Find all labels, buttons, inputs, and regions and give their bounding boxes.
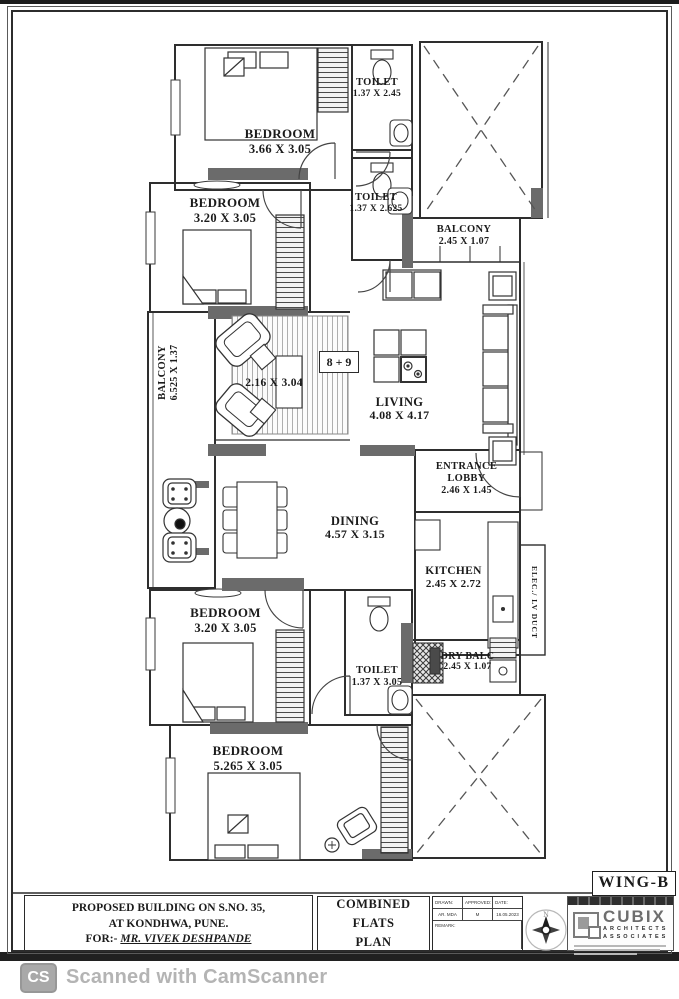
- logo-header-band: [568, 897, 673, 905]
- drawing-title-line-1: COMBINED FLATS: [318, 895, 429, 933]
- architect-sub-1: ARCHITECTS: [603, 925, 668, 933]
- room-name: BEDROOM: [150, 196, 300, 211]
- architect-firm-name: CUBIX: [603, 908, 668, 925]
- project-line-3: FOR:- MR. VIVEK DESHPANDE: [25, 932, 312, 948]
- info-header-date: DATE:: [493, 897, 522, 909]
- label-dining: DINING 4.57 X 3.15: [300, 514, 410, 541]
- drawing-title-line-2: PLAN: [318, 933, 429, 952]
- logo-address-line: [574, 953, 637, 955]
- logo-address-line: [574, 945, 666, 947]
- room-name: LOBBY: [424, 473, 509, 485]
- drawing-title-box: COMBINED FLATS PLAN: [317, 896, 430, 951]
- balcony-stools: [163, 479, 196, 562]
- room-name: TOILET: [344, 77, 410, 89]
- label-living: LIVING 4.08 X 4.17: [352, 395, 447, 422]
- project-line-2: AT KONDHWA, PUNE.: [25, 917, 312, 933]
- scanned-floor-plan-page: BEDROOM 3.66 X 3.05 TOILET 1.37 X 2.45 B…: [0, 0, 679, 999]
- for-prefix: FOR:-: [86, 933, 121, 945]
- cubix-logo-icon: [573, 912, 599, 938]
- room-dims: 2.45 X 2.72: [406, 578, 501, 590]
- room-dims: 1.37 X 3.05: [344, 677, 410, 688]
- room-name: BALCONY: [157, 335, 169, 410]
- unit-number: 8 + 9: [327, 355, 352, 369]
- label-kitchen: KITCHEN 2.45 X 2.72: [406, 565, 501, 590]
- camscanner-badge: CS: [20, 963, 57, 993]
- north-compass: N: [524, 904, 568, 952]
- room-name: BALCONY: [420, 224, 508, 236]
- label-balcony-left: BALCONY 6.525 X 1.37: [157, 335, 191, 410]
- camscanner-label-text: Scanned with CamScanner: [66, 966, 327, 988]
- room-name: BEDROOM: [168, 744, 328, 759]
- client-name: MR. VIVEK DESHPANDE: [120, 933, 251, 945]
- room-name: TOILET: [342, 192, 410, 204]
- camscanner-label: Scanned with CamScanner: [66, 966, 327, 989]
- room-dims: 2.45 X 1.07: [430, 662, 505, 673]
- label-bedroom-top: BEDROOM 3.66 X 3.05: [200, 127, 360, 156]
- bedroom-chair: [325, 805, 379, 852]
- room-dims: 1.37 X 2.625: [342, 204, 410, 215]
- dining-set: [223, 482, 287, 558]
- wing-label-box: WING-B: [592, 871, 676, 896]
- room-name: ENTRANCE: [424, 461, 509, 473]
- label-bedroom-bottom: BEDROOM 5.265 X 3.05: [168, 744, 328, 773]
- label-elec-duct: ELEC./ LV DUCT: [524, 555, 538, 650]
- room-name: ELEC./ LV DUCT: [530, 555, 538, 650]
- room-name: LIVING: [352, 395, 447, 409]
- room-dims: 6.525 X 1.37: [169, 335, 180, 410]
- info-table-box: DRAWN: APPROVED: DATE: AR. MDA M 16.05.2…: [432, 896, 523, 951]
- project-line-1: PROPOSED BUILDING ON S.NO. 35,: [25, 901, 312, 917]
- info-value-approved: M: [463, 909, 493, 921]
- camscanner-badge-text: CS: [27, 969, 49, 987]
- label-balcony-top-right: BALCONY 2.45 X 1.07: [420, 224, 508, 247]
- architect-logo-box: CUBIX ARCHITECTS ASSOCIATES: [567, 896, 674, 951]
- info-header-approved: APPROVED:: [463, 897, 493, 909]
- project-title-box: PROPOSED BUILDING ON S.NO. 35, AT KONDHW…: [24, 895, 313, 951]
- room-name: DINING: [300, 514, 410, 528]
- room-dims: 4.08 X 4.17: [352, 409, 447, 422]
- room-dims: 3.20 X 3.05: [148, 621, 303, 635]
- room-name: BEDROOM: [200, 127, 360, 142]
- architect-sub-2: ASSOCIATES: [603, 933, 668, 941]
- room-dims: 4.57 X 3.15: [300, 528, 410, 541]
- wing-label: WING-B: [598, 874, 669, 891]
- info-table: DRAWN: APPROVED: DATE: AR. MDA M 16.05.2…: [433, 897, 522, 933]
- room-name: KITCHEN: [406, 565, 501, 578]
- label-toilet-mid: TOILET 1.37 X 2.625: [342, 192, 410, 214]
- living-furniture: [374, 270, 517, 465]
- room-dims: 3.20 X 3.05: [150, 211, 300, 225]
- label-sitting-dims: 2.16 X 3.04: [236, 377, 312, 390]
- unit-number-box: 8 + 9: [319, 351, 359, 373]
- info-value-date: 16.05.2023: [493, 909, 522, 921]
- room-name: BEDROOM: [148, 606, 303, 621]
- room-name: TOILET: [344, 665, 410, 677]
- label-dry-balcony: DRY BALC 2.45 X 1.07: [430, 651, 505, 673]
- label-toilet-bottom: TOILET 1.37 X 3.05: [344, 665, 410, 688]
- label-bedroom-bottom-left: BEDROOM 3.20 X 3.05: [148, 606, 303, 635]
- logo-address-line: [574, 949, 660, 951]
- info-remark-label: REMARK:: [433, 921, 522, 949]
- info-header-drawn: DRAWN:: [433, 897, 463, 909]
- room-dims: 2.45 X 1.07: [420, 236, 508, 247]
- label-toilet-top: TOILET 1.37 X 2.45: [344, 77, 410, 99]
- room-dims: 2.46 X 1.45: [424, 485, 509, 496]
- label-bedroom-mid: BEDROOM 3.20 X 3.05: [150, 196, 300, 225]
- room-dims: 2.16 X 3.04: [236, 377, 312, 390]
- sitting-area-furniture: [212, 310, 348, 440]
- room-dims: 1.37 X 2.45: [344, 89, 410, 100]
- room-dims: 5.265 X 3.05: [168, 759, 328, 773]
- info-value-drawn: AR. MDA: [433, 909, 463, 921]
- room-name: DRY BALC: [430, 651, 505, 662]
- label-entrance-lobby: ENTRANCE LOBBY 2.46 X 1.45: [424, 461, 509, 496]
- room-dims: 3.66 X 3.05: [200, 142, 360, 156]
